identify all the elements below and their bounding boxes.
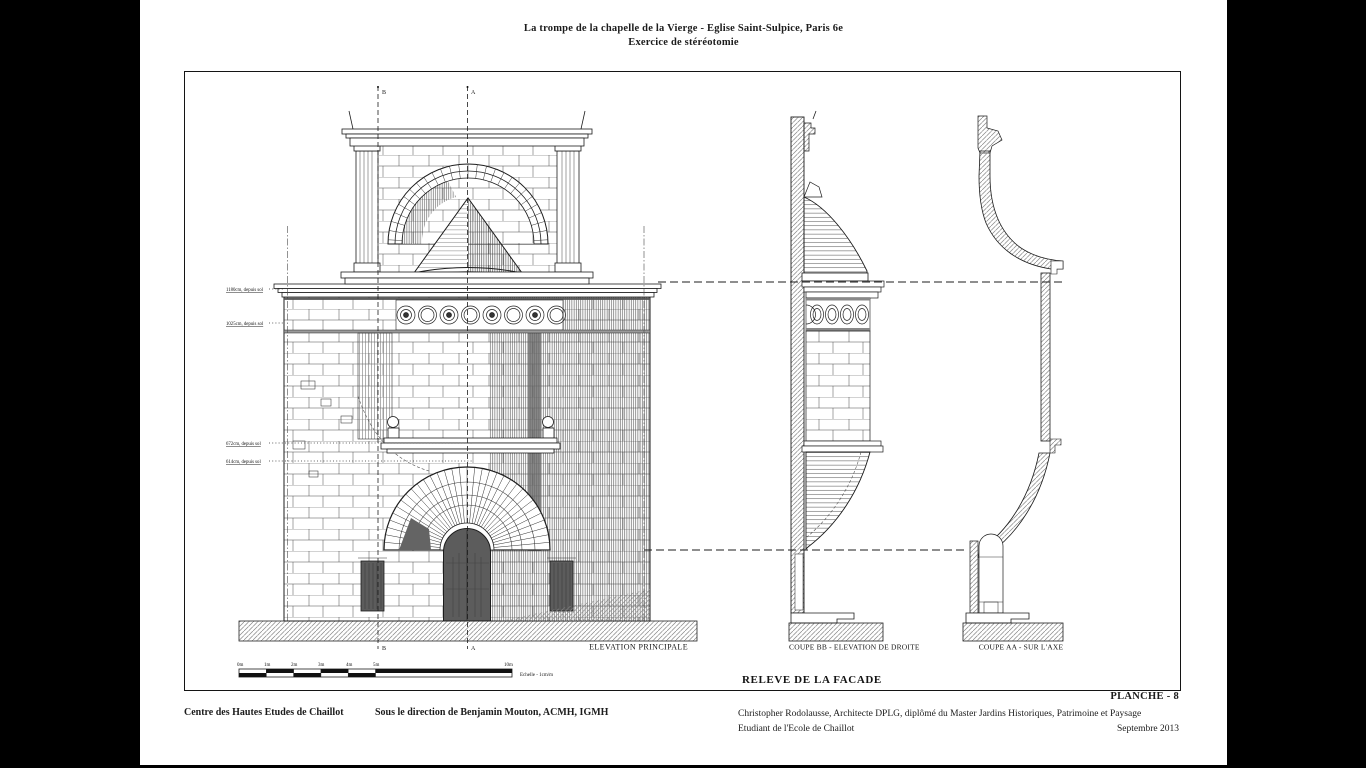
scale-tick-2m: 2m — [291, 663, 298, 668]
level-label-4: 614cm, depuis sol — [226, 460, 261, 465]
scale-tick-1m: 1m — [264, 663, 271, 668]
bb-rosette-frieze — [806, 298, 870, 331]
attic-storey — [341, 111, 593, 284]
scale-tick-3m: 3m — [318, 663, 325, 668]
trompe-curve-bb — [806, 452, 870, 549]
footer-author-line1: Christopher Rodolausse, Architecte DPLG,… — [738, 707, 1179, 722]
viewer-background: La trompe de la chapelle de la Vierge - … — [0, 0, 1366, 768]
coupe-bb-view: COUPE BB - ELEVATION DE DROITE — [789, 111, 920, 652]
elevation-principale-view: B A B A 1180cm, depuis sol 1025cm, depui… — [226, 86, 697, 652]
architectural-drawing: B A B A 1180cm, depuis sol 1025cm, depui… — [185, 72, 1180, 690]
aa-window — [979, 534, 1003, 613]
axis-label-a-bottom: A — [471, 646, 476, 652]
drawing-sheet: La trompe de la chapelle de la Vierge - … — [140, 0, 1227, 765]
axis-label-b-bottom: B — [382, 646, 386, 652]
attic-pilaster-left — [354, 144, 380, 272]
sheet-title-line1: La trompe de la chapelle de la Vierge - … — [140, 22, 1227, 36]
ground-hatch-elevation — [239, 621, 697, 641]
coupe-aa-caption: COUPE AA - SUR L'AXE — [979, 643, 1064, 652]
scale-tick-0m: 0m — [237, 663, 244, 668]
footer-direction: Sous le direction de Benjamin Mouton, AC… — [375, 707, 608, 718]
ground-hatch-bb — [789, 623, 883, 641]
level-label-3: 672cm, depuis sol — [226, 442, 261, 447]
drawing-set-title: RELEVE DE LA FACADE — [742, 674, 882, 686]
attic-pilaster-right — [555, 144, 581, 272]
elevation-caption: ELEVATION PRINCIPALE — [589, 643, 688, 652]
plate-number: PLANCHE - 8 — [979, 691, 1179, 702]
scale-tick-4m: 4m — [346, 663, 353, 668]
sheet-title-line2: Exercice de stéréotomie — [140, 36, 1227, 50]
scale-bar: 0m 1m 2m 3m 4m 5m 10m — [237, 663, 553, 678]
scale-caption: Echelle - 1cm/m — [520, 673, 553, 678]
axis-label-b-top: B — [382, 90, 386, 96]
aa-upper-profile — [979, 151, 1063, 269]
side-door-left — [358, 558, 387, 611]
side-door-right — [547, 558, 576, 611]
bb-cornice — [802, 281, 884, 298]
attic-entablature — [342, 111, 592, 146]
footer-institution: Centre des Hautes Etudes de Chaillot — [184, 707, 344, 718]
axis-label-a-top: A — [471, 90, 476, 96]
footer-author-line2: Etudiant de l'Ecole de Chaillot — [738, 724, 854, 734]
level-label-2: 1025cm, depuis sol — [226, 322, 264, 327]
sheet-title: La trompe de la chapelle de la Vierge - … — [140, 22, 1227, 50]
trompe-cone-section — [804, 197, 867, 273]
footer-date: Septembre 2013 — [1117, 722, 1179, 737]
ground-hatch-aa — [963, 623, 1063, 641]
level-label-1: 1180cm, depuis sol — [226, 288, 264, 293]
pilaster-striations — [358, 333, 392, 439]
footer-author-block: Christopher Rodolausse, Architecte DPLG,… — [738, 707, 1179, 737]
main-door — [444, 529, 491, 622]
drawing-frame: B A B A 1180cm, depuis sol 1025cm, depui… — [184, 71, 1181, 691]
coupe-aa-view: COUPE AA - SUR L'AXE — [963, 116, 1063, 652]
coupe-bb-caption: COUPE BB - ELEVATION DE DROITE — [789, 643, 920, 652]
scale-tick-10m: 10m — [504, 663, 513, 668]
scale-tick-5m: 5m — [373, 663, 380, 668]
